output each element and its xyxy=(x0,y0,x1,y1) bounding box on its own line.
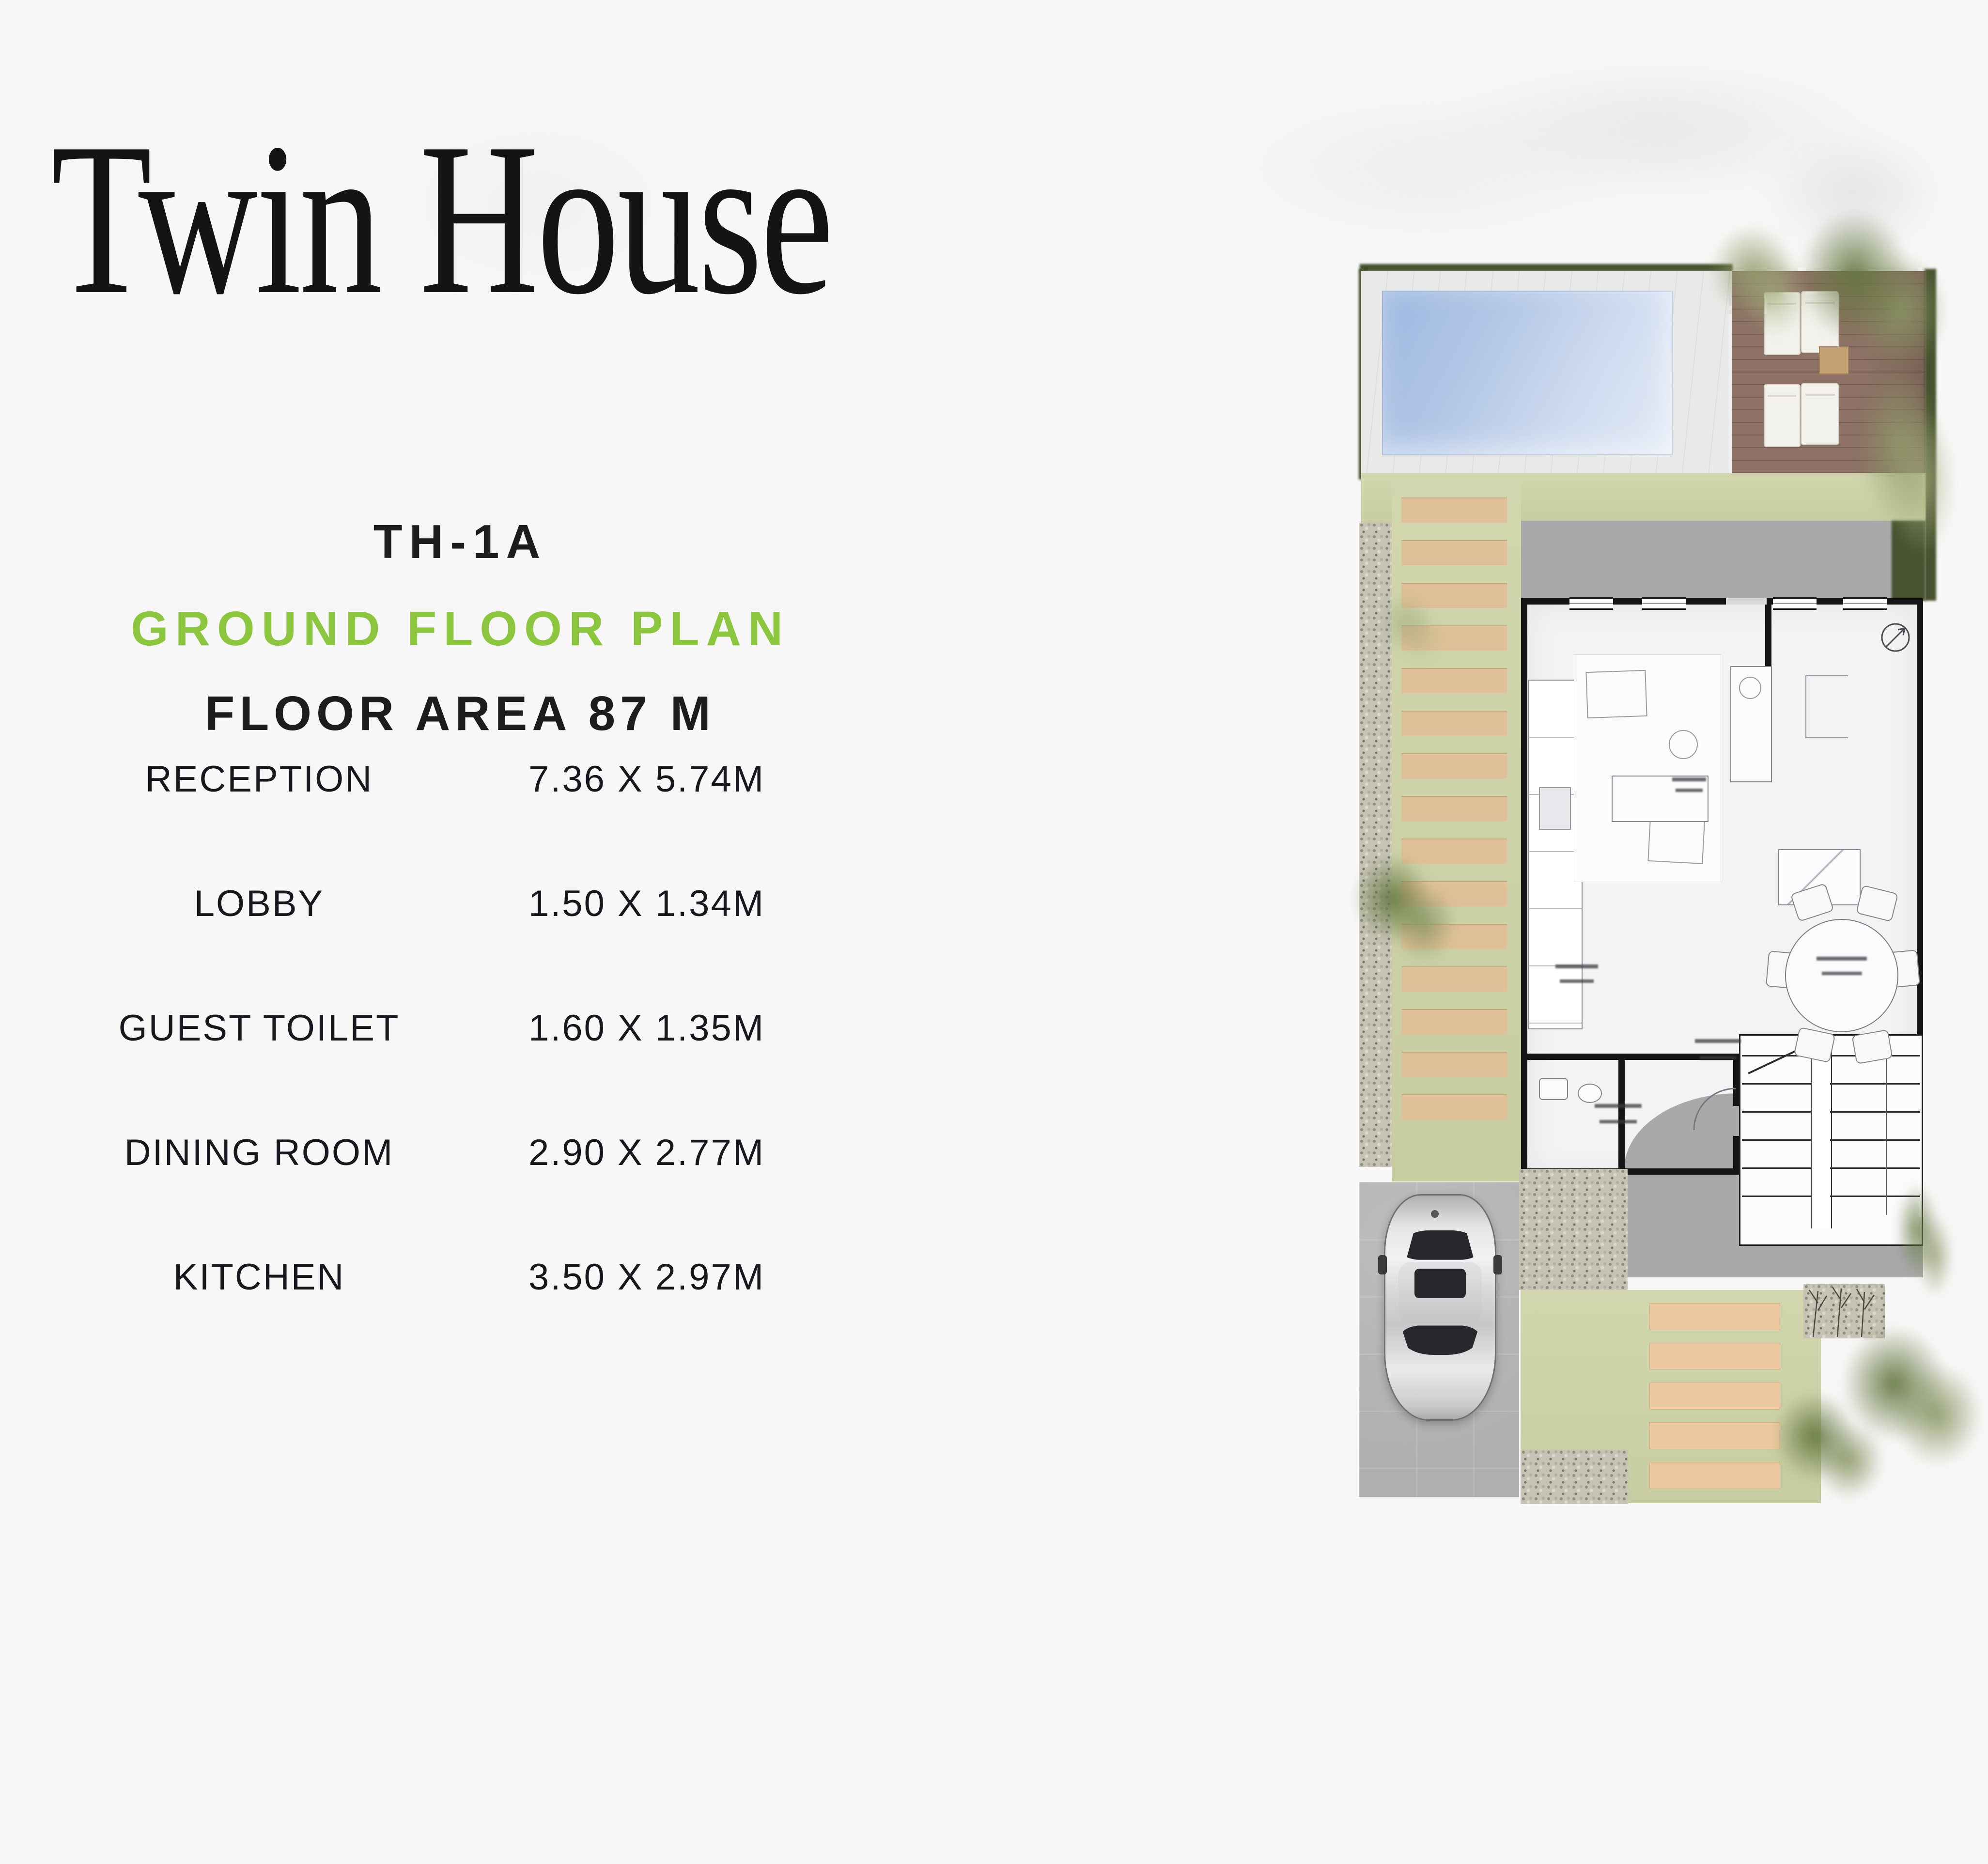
door-swing-arc xyxy=(1692,1087,1737,1131)
hedge-terrace-end xyxy=(1892,521,1926,601)
car-mirror-right xyxy=(1493,1255,1502,1274)
sun-lounger xyxy=(1764,292,1801,355)
room-label-scribble xyxy=(1553,964,1601,983)
deck-board xyxy=(1649,1462,1780,1489)
room-row-dining-room: DINING ROOM 2.90 X 2.77M xyxy=(73,1132,848,1174)
stair-flight-left xyxy=(1742,1055,1811,1211)
car-sunroof xyxy=(1414,1269,1466,1298)
window xyxy=(1773,597,1817,610)
room-dimensions: 7.36 X 5.74M xyxy=(446,758,848,800)
unit-code: TH-1A xyxy=(73,514,848,569)
room-row-lobby: LOBBY 1.50 X 1.34M xyxy=(73,883,848,925)
room-row-reception: RECEPTION 7.36 X 5.74M xyxy=(73,758,848,800)
pebble-court xyxy=(1519,1169,1628,1290)
deck-board xyxy=(1649,1422,1780,1449)
deck-side-table xyxy=(1819,346,1849,374)
room-dimensions: 2.90 X 2.77M xyxy=(446,1132,848,1174)
sun-lounger xyxy=(1801,291,1839,353)
room-row-guest-toilet: GUEST TOILET 1.60 X 1.35M xyxy=(73,1007,848,1049)
bare-branch-sketch xyxy=(1803,1281,1885,1339)
staircase xyxy=(1739,1034,1923,1246)
page-title: Twin House xyxy=(51,110,832,328)
room-label: KITCHEN xyxy=(73,1256,446,1298)
deck-board xyxy=(1649,1303,1780,1330)
plank-stepping-path xyxy=(1401,497,1507,1123)
watercolor-smudge-top-right xyxy=(1129,29,1981,281)
window xyxy=(1569,597,1613,610)
coffee-table-sketch xyxy=(1669,730,1698,759)
pebble-patch xyxy=(1521,1450,1628,1504)
room-label: GUEST TOILET xyxy=(73,1007,446,1049)
decor-sketch xyxy=(1739,677,1761,699)
room-dimensions: 3.50 X 2.97M xyxy=(446,1256,848,1298)
dining-table xyxy=(1785,919,1898,1032)
sun-lounger xyxy=(1764,384,1801,447)
room-label-scribble xyxy=(1692,1039,1744,1059)
floor-plan xyxy=(1359,264,1938,1504)
plan-info: TH-1A GROUND FLOOR PLAN FLOOR AREA 87 M xyxy=(73,514,848,742)
deck-board xyxy=(1649,1382,1780,1410)
sofa-sketch xyxy=(1585,670,1647,718)
room-label: LOBBY xyxy=(73,883,446,925)
room-dimensions: 1.50 X 1.34M xyxy=(446,883,848,925)
car-mirror-left xyxy=(1378,1255,1387,1274)
room-dimension-table: RECEPTION 7.36 X 5.74M LOBBY 1.50 X 1.34… xyxy=(73,758,848,1381)
room-label: DINING ROOM xyxy=(73,1132,446,1174)
deck-board xyxy=(1649,1343,1780,1370)
window xyxy=(1843,597,1887,610)
stair-rail-line xyxy=(1886,1055,1887,1215)
plan-subtitle: GROUND FLOOR PLAN xyxy=(73,601,848,657)
driveway xyxy=(1359,1182,1519,1497)
north-compass-sketch xyxy=(1879,621,1911,653)
wall-opening xyxy=(1726,598,1767,605)
brochure-page: Twin House TH-1A GROUND FLOOR PLAN FLOOR… xyxy=(0,0,1988,1864)
stair-flight-right xyxy=(1830,1055,1920,1211)
swimming-pool xyxy=(1382,291,1673,455)
room-label: RECEPTION xyxy=(73,758,446,800)
room-label-scribble xyxy=(1670,777,1708,792)
hedge-right xyxy=(1925,269,1936,601)
sink-fixture xyxy=(1578,1084,1602,1103)
room-label-scribble xyxy=(1813,957,1870,975)
room-label-scribble xyxy=(1591,1104,1645,1123)
terrace-paving xyxy=(1521,521,1926,601)
desk-sketch xyxy=(1805,675,1848,738)
floor-area: FLOOR AREA 87 M xyxy=(73,686,848,742)
window xyxy=(1642,597,1686,610)
kitchen-sink xyxy=(1539,787,1571,830)
car xyxy=(1384,1194,1496,1421)
toilet-fixture xyxy=(1539,1078,1568,1100)
sun-lounger xyxy=(1801,383,1839,445)
room-row-kitchen: KITCHEN 3.50 X 2.97M xyxy=(73,1256,848,1298)
room-dimensions: 1.60 X 1.35M xyxy=(446,1007,848,1049)
pebble-strip-left xyxy=(1359,523,1392,1167)
